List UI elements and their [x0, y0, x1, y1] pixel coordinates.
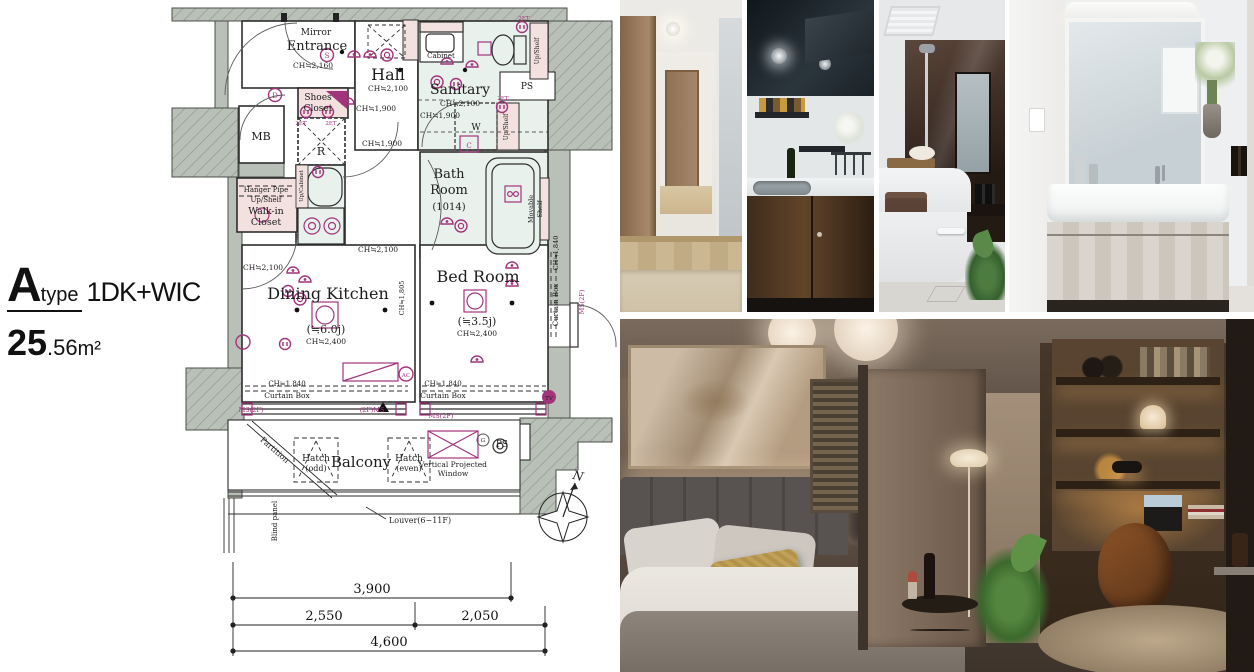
shelf-1 [1056, 377, 1220, 385]
soap-bottle-1 [1075, 156, 1086, 184]
label-ps-1: PS [521, 82, 533, 92]
desk-chair [1098, 523, 1172, 611]
vanity-faucet [1155, 166, 1160, 184]
label-wic-ch: CH≒2,100 [243, 263, 283, 272]
label-hanger-pipe: Hanger Pipe [244, 186, 289, 194]
label-wic-2: Closet [251, 217, 282, 228]
label-et-4: 2ET [497, 96, 509, 102]
label-bath-1: Bath [434, 167, 466, 182]
brochure-page: Atype1DK+WIC 25.56m² [0, 0, 1254, 672]
label-bed-ch: CH≒2,400 [457, 329, 497, 338]
label-ps-2: PS [496, 440, 508, 450]
label-curtainbox-v: Curtain Box [552, 284, 560, 327]
desk-books [1188, 505, 1224, 519]
right-vase [1232, 533, 1248, 567]
hallway-stone-floor [620, 270, 742, 312]
label-movable-2: Shelf [536, 200, 544, 218]
label-ms2f-4: MS(2F) [578, 289, 586, 314]
artwork-gold-detail [680, 379, 750, 423]
label-wic-1: Walk-in [248, 206, 284, 217]
hallway-threshold [620, 236, 742, 242]
dim-3900: 3,900 [353, 582, 390, 597]
kitchen-flowers [835, 112, 865, 146]
label-hall-ch: CH≒2,100 [368, 84, 408, 93]
label-curtain-ch-v: CH≒1,840 [552, 236, 560, 271]
label-dk: Dining Kitchen [267, 284, 389, 303]
round-rug [1038, 605, 1254, 672]
shelf-3 [1056, 481, 1220, 489]
label-ch1900-a: CH≒1,900 [356, 104, 396, 113]
label-curtainbox-a: Curtain Box [264, 391, 310, 400]
label-ch1840-b: CH≒1,840 [424, 380, 461, 388]
vanity-basin [1047, 184, 1229, 222]
label-ac: AC [401, 373, 410, 379]
label-hatch-1: Hatch [302, 454, 330, 464]
label-d: D [272, 92, 278, 100]
dimension-labels: 3,900 2,550 2,050 4,600 [305, 582, 498, 650]
label-ch2160: CH≒2,160 [293, 61, 333, 70]
bathroom-bottles [975, 184, 995, 204]
label-dk-size: (≒6.0j) [307, 323, 346, 336]
label-cabinet: Cabinet [427, 52, 455, 60]
kitchen-wine-bottle [787, 148, 795, 180]
label-louver: Louver(6~11F) [389, 516, 451, 525]
mirror-window-reflection [1161, 46, 1199, 114]
floor-lamp-shade [950, 449, 988, 467]
label-mirror: Mirror [301, 28, 332, 38]
vanity-vase [1203, 104, 1221, 138]
shelf-lamp [1140, 405, 1166, 429]
shower-head [919, 44, 935, 53]
ceiling-light [666, 22, 680, 36]
kitchen-spice-jars [759, 98, 805, 112]
label-dk-ch2: CH≒2,100 [358, 245, 398, 254]
label-hatch-odd: (odd) [305, 464, 326, 473]
photo-bedroom [620, 319, 1254, 672]
label-hall: Hall [371, 65, 405, 84]
kitchen-shelf-1 [755, 112, 809, 118]
label-c: C [466, 142, 471, 150]
wall-switch [1029, 108, 1045, 132]
cabinet-handle-line [1047, 234, 1229, 236]
dim-2050: 2,050 [461, 609, 498, 624]
label-movable-1: Movable [527, 195, 535, 223]
label-sanitary: Sanitary [430, 82, 490, 98]
label-et-2: 2ET [325, 121, 337, 127]
bath-tray [887, 158, 935, 168]
bathroom-mirror [955, 72, 991, 174]
label-vpw-2: Window [438, 469, 469, 478]
label-blind-panel: Blind panel [271, 500, 279, 541]
label-ch1900-c: CH≒1,900 [420, 111, 460, 120]
label-refrigerator: R [317, 145, 326, 158]
wine-bottle [924, 553, 935, 599]
desk-lamp [1112, 461, 1142, 473]
label-wic-upshelf: Up/Shelf [250, 196, 282, 204]
kitchen-kickplate [747, 298, 874, 312]
label-ch1900-b: CH≒1,900 [362, 139, 402, 148]
soap-bottle-2 [1089, 164, 1098, 184]
label-upcabinet: Up/Cabinet [299, 169, 305, 202]
kitchen-cabinet-handle [817, 232, 822, 237]
kitchen-sink [753, 181, 811, 195]
wine-glass [908, 571, 917, 599]
label-washer: W [471, 123, 481, 133]
label-vpw-1: Vertical Projected [418, 460, 487, 469]
label-s-switch: S [325, 52, 330, 60]
label-balcony: Balcony [331, 453, 392, 471]
label-ms2f-3: MS(2F) [429, 412, 454, 420]
shelf-ornaments [1080, 355, 1124, 377]
hallway-wood-floor [620, 240, 742, 270]
label-upshelf-1: Up/Shelf [534, 37, 541, 64]
laptop [1144, 495, 1182, 531]
label-ch1805: CH≒1,805 [398, 281, 406, 316]
label-hatch-even: (even) [396, 464, 421, 473]
photo-hallway [620, 0, 742, 312]
photo-vanity [1009, 0, 1254, 312]
vanity-floor [1229, 286, 1254, 312]
label-g: G [481, 438, 485, 444]
vanity-right-wall [1247, 0, 1254, 312]
label-mb: MB [251, 130, 270, 143]
label-ms2f-2: (2F)MS [360, 406, 385, 414]
label-tv: TV [545, 396, 554, 402]
label-entrance: Entrance [287, 39, 348, 54]
bathroom-vent [883, 6, 940, 36]
tub-handle [937, 228, 965, 234]
sliding-door-frame [858, 365, 868, 650]
right-counter [1214, 567, 1254, 575]
hallway-far-door [665, 70, 699, 190]
photo-kitchen [747, 0, 874, 312]
kitchen-cabinet-seam [811, 196, 813, 312]
label-bath-2: Room [430, 183, 468, 198]
label-et-3: 2ET [518, 16, 530, 22]
dim-4600: 4,600 [370, 635, 407, 650]
shelf-2 [1056, 429, 1220, 437]
label-bed: Bed Room [436, 267, 519, 286]
tub-front [879, 212, 967, 282]
right-cabinet [1226, 319, 1254, 672]
label-dk-ch: CH≒2,400 [306, 337, 346, 346]
kitchen-utensils [835, 155, 867, 175]
label-ch1840-a: CH≒1,840 [268, 380, 305, 388]
photo-bathroom [879, 0, 1005, 312]
label-shoes-2: Closet [304, 104, 333, 114]
floor-plan: Mirror Entrance CH≒2,160 S D Hall CH≒2,1… [0, 0, 620, 672]
dim-2550: 2,550 [305, 609, 342, 624]
shelf-books [1140, 347, 1210, 377]
hallway-left-door [620, 16, 656, 246]
hallway-far-floor [660, 186, 712, 214]
bath-sponge [909, 146, 935, 160]
label-shoes-1: Shoes [304, 93, 332, 103]
cabinet-toe-kick [1047, 300, 1229, 312]
label-curtainbox-b: Curtain Box [420, 391, 466, 400]
label-sanitary-ch: CH≒2,100 [440, 99, 480, 108]
kitchen-downlight [771, 48, 787, 64]
label-et-1: 2ET [295, 121, 307, 127]
floor-lamp-pole [968, 467, 970, 617]
label-bed-size: (≒3.5j) [458, 315, 497, 328]
label-bath-size: (1014) [432, 202, 465, 213]
label-ms2f-1: MS(2F) [239, 406, 264, 414]
hallway-mirror [716, 18, 742, 256]
label-upshelf-2: Up/Shelf [503, 113, 510, 140]
